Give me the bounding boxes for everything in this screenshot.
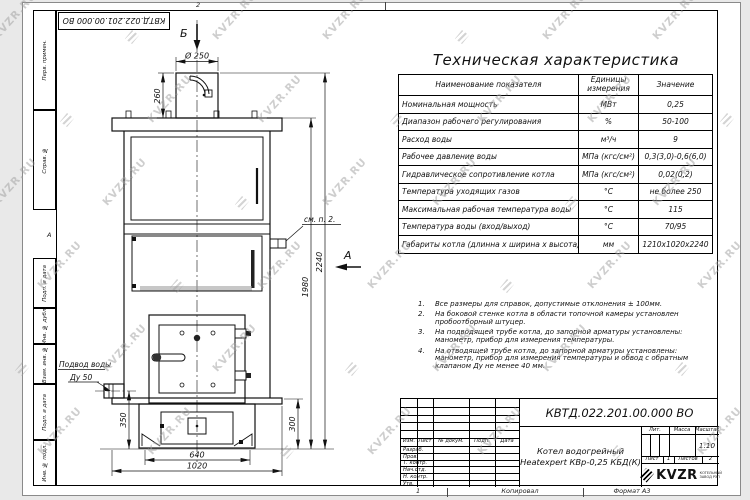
tech-row: Рабочее давление водыМПа (кгс/см²)0,3(3,…: [399, 148, 713, 166]
tech-row: Гидравлическое сопротивление котлаМПа (к…: [399, 166, 713, 184]
top-doc-number-stamp: КВТД.022.201.00.000 ВО: [58, 12, 170, 30]
sidebar-box-podp-data-2: Подп. и дата: [33, 384, 56, 440]
tech-row: Температура уходящих газов°Сне более 250: [399, 183, 713, 201]
titleblock-line: [401, 446, 519, 447]
sidebar-label: Перв. примен.: [42, 40, 48, 80]
product-line1: Котел водогрейный: [537, 446, 624, 457]
titleblock-line: [674, 456, 675, 463]
lit-label: Лит.: [641, 427, 669, 435]
sidebar-box-podp-data-1: Подп. и дата: [33, 258, 56, 308]
title-block: Изм. Лист № докум. Подп. Дата Разраб. Пр…: [400, 398, 718, 486]
titleblock-line: [669, 426, 670, 456]
titleblock-line: [401, 473, 519, 474]
sidebar-box-inv-podl: Инв. № подл.: [33, 440, 56, 486]
scale-value: 1:10: [695, 434, 719, 456]
param-name: Габариты котла (длинна х ширина х высота…: [399, 236, 579, 254]
titleblock-line: [401, 430, 519, 431]
titleblock-line: [401, 466, 519, 467]
note-text: На отводящей трубе котла, до запорной ар…: [435, 348, 716, 371]
product-line2: Heatexpert КВр-0,25 КБД(К): [520, 457, 641, 468]
titleblock-line: [401, 422, 519, 423]
param-value: 115: [639, 201, 713, 219]
tech-row: Номинальная мощностьМВт0,25: [399, 96, 713, 114]
titleblock-line: [663, 456, 664, 463]
product-title: Котел водогрейный Heatexpert КВр-0,25 КБ…: [520, 427, 641, 486]
titleblock-line: [659, 434, 660, 456]
param-value: 70/95: [639, 218, 713, 236]
tech-header-name: Наименование показателя: [399, 75, 579, 96]
note-number: 2.: [418, 311, 435, 327]
tech-row: Диапазон рабочего регулирования%50-100: [399, 113, 713, 131]
titleblock-line: [401, 480, 519, 481]
notes-list: 1.Все размеры для справок, допустимые от…: [418, 301, 716, 374]
param-value: 0,25: [639, 96, 713, 114]
company-logo: KVZR КОТЕЛЬНЫЙ ЗАВОД РЭП: [642, 463, 719, 487]
zone-tick: [583, 488, 584, 497]
titleblock-line: [641, 463, 719, 464]
copied-label: Копировал: [460, 487, 580, 495]
scale-label: Масштаб: [695, 427, 719, 435]
titleblock-line: [401, 415, 519, 416]
note-number: 4.: [418, 348, 435, 371]
param-name: Номинальная мощность: [399, 96, 579, 114]
sidebar-label: Инв. № подл.: [42, 444, 48, 482]
note-text: На подводящей трубе котла, до запорной а…: [435, 329, 716, 345]
sidebar-label: Подп. и дата: [42, 265, 48, 302]
note-text: Все размеры для справок, допустимые откл…: [435, 301, 662, 309]
tech-row: Габариты котла (длинна х ширина х высота…: [399, 236, 713, 254]
param-name: Расход воды: [399, 131, 579, 149]
col-data: Дата: [495, 438, 519, 446]
zone-tick: [385, 2, 386, 10]
format-label: Формат А3: [592, 487, 672, 495]
tech-row: Максимальная рабочая температура воды°С1…: [399, 201, 713, 219]
zone-number-bottom: 1: [416, 487, 420, 495]
tech-row: Расход водым³/ч9: [399, 131, 713, 149]
param-units: МПа (кгс/см²): [579, 166, 639, 184]
param-name: Максимальная рабочая температура воды: [399, 201, 579, 219]
kvzr-logo-text: KVZR: [656, 468, 698, 483]
param-units: мм: [579, 236, 639, 254]
sidebar-label: Взам. инв. №: [42, 346, 48, 383]
titleblock-line: [641, 434, 719, 435]
col-izm: Изм.: [401, 438, 417, 446]
role-utv: Утв.: [403, 481, 433, 488]
kvzr-logo-subtitle: КОТЕЛЬНЫЙ ЗАВОД РЭП: [700, 471, 722, 479]
param-units: °С: [579, 183, 639, 201]
col-list: Лист: [417, 438, 433, 446]
param-value: 1210х1020х2240: [639, 236, 713, 254]
tech-header-row: Наименование показателя Единицы измерени…: [399, 75, 713, 96]
mass-label: Масса: [669, 427, 695, 435]
param-value: 0,02(0,2): [639, 166, 713, 184]
titleblock-line: [519, 426, 719, 427]
param-units: °С: [579, 201, 639, 219]
param-value: 9: [639, 131, 713, 149]
param-units: %: [579, 113, 639, 131]
titleblock-line: [401, 453, 519, 454]
titleblock-line: [641, 456, 719, 457]
param-value: 0,3(3,0)-0,6(6,0): [639, 148, 713, 166]
logo-sub-line2: ЗАВОД РЭП: [700, 475, 722, 479]
note-text: На боковой стенке котла в области топочн…: [435, 311, 716, 327]
sidebar-label: Инв. № дубл.: [42, 307, 48, 344]
param-name: Гидравлическое сопротивление котла: [399, 166, 579, 184]
zone-tick: [447, 488, 448, 497]
tech-row: Температура воды (вход/выход)°С70/95: [399, 218, 713, 236]
titleblock-line: [702, 456, 703, 463]
note-number: 1.: [418, 301, 435, 309]
param-units: МВт: [579, 96, 639, 114]
sidebar-box-perv-primen: Перв. примен.: [33, 10, 56, 110]
tech-header-value: Значение: [639, 75, 713, 96]
zone-letter-a: А: [47, 231, 51, 239]
param-units: °С: [579, 218, 639, 236]
sidebar-box-vzam-inv: Взам. инв. №: [33, 344, 56, 384]
sidebar-label: Подп. и дата: [42, 394, 48, 431]
drawing-sheet: { "watermark": {"text": "KVZR.RU"}, "top…: [0, 0, 750, 500]
note-item: 4.На отводящей трубе котла, до запорной …: [418, 348, 716, 371]
sidebar-box-sprav-no: Справ. №: [33, 110, 56, 210]
param-units: МПа (кгс/см²): [579, 148, 639, 166]
titleblock-line: [650, 434, 651, 456]
note-number: 3.: [418, 329, 435, 345]
param-name: Температура воды (вход/выход): [399, 218, 579, 236]
col-podp: Подп.: [469, 438, 495, 446]
param-name: Температура уходящих газов: [399, 183, 579, 201]
tech-header-units: Единицы измерения: [579, 75, 639, 96]
titleblock-line: [401, 460, 519, 461]
doc-number: КВТД.022.201.00.000 ВО: [520, 399, 719, 426]
param-units: м³/ч: [579, 131, 639, 149]
param-name: Рабочее давление воды: [399, 148, 579, 166]
note-item: 2.На боковой стенке котла в области топо…: [418, 311, 716, 327]
sidebar-box-inv-dubl: Инв. № дубл.: [33, 308, 56, 344]
note-item: 1.Все размеры для справок, допустимые от…: [418, 301, 716, 309]
zone-number-top: 2: [196, 1, 200, 9]
titleblock-line: [695, 426, 696, 456]
titleblock-line: [401, 407, 519, 408]
param-value: 50-100: [639, 113, 713, 131]
sidebar-label: Справ. №: [42, 147, 48, 174]
titleblock-line: [401, 438, 519, 439]
col-docnum: № докум.: [433, 438, 469, 446]
tech-table: Наименование показателя Единицы измерени…: [398, 74, 713, 254]
param-name: Диапазон рабочего регулирования: [399, 113, 579, 131]
note-item: 3.На подводящей трубе котла, до запорной…: [418, 329, 716, 345]
titleblock-line: [519, 399, 520, 487]
param-value: не более 250: [639, 183, 713, 201]
tech-table-title: Техническая характеристика: [398, 51, 714, 69]
